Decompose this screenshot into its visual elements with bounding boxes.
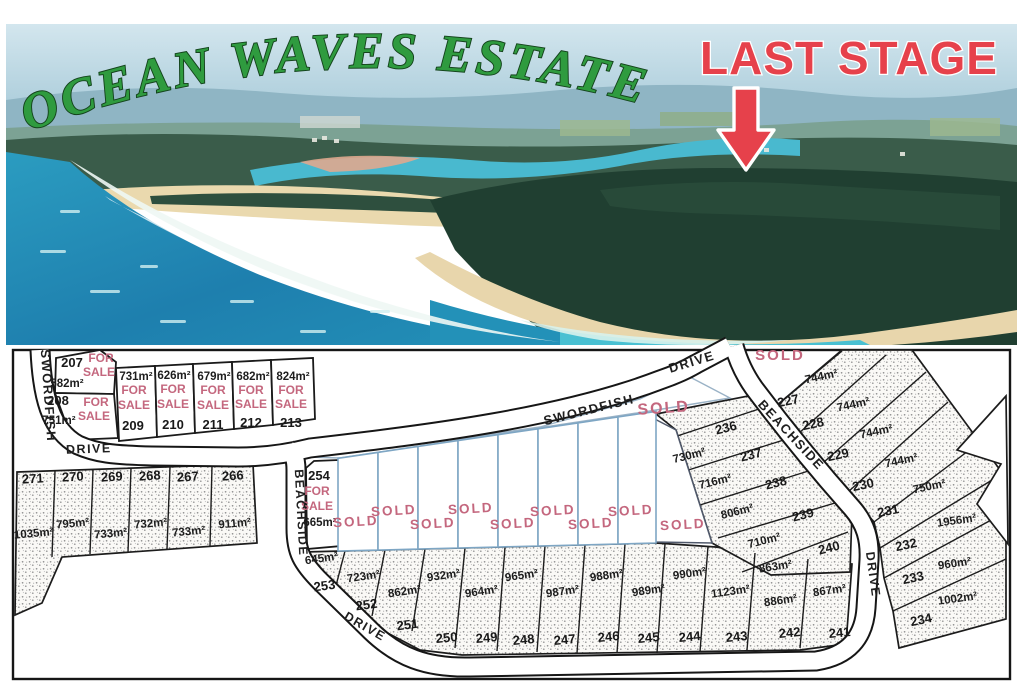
lot-number: 245: [637, 629, 660, 646]
lot-number: 212: [240, 415, 262, 430]
lot-number: 248: [512, 631, 535, 648]
street-label-drive-west: DRIVE: [66, 441, 112, 457]
for-sale-label: SALE: [78, 409, 110, 423]
sold-label: SOLD: [568, 515, 614, 532]
sold-label: SOLD: [755, 347, 805, 364]
lot-sold-row: [378, 447, 418, 551]
sold-label: SOLD: [660, 516, 706, 533]
lot-number: 253: [313, 577, 336, 595]
estate-poster: OCEAN WAVES ESTATE LAST STAGE 207582m²FO…: [0, 0, 1023, 688]
for-sale-label: SALE: [83, 365, 115, 379]
lot-number: 267: [177, 468, 199, 484]
lot-number: 213: [280, 415, 302, 430]
for-sale-label: SALE: [275, 397, 307, 411]
lot-number: 251: [396, 616, 419, 634]
sold-label: SOLD: [490, 515, 536, 532]
estate-lot-map: 207582m²FORSALE208751m²FORSALE209731m²FO…: [0, 0, 1023, 688]
sold-label: SOLD: [448, 500, 494, 517]
for-sale-label: FOR: [200, 383, 226, 397]
for-sale-label: FOR: [278, 383, 304, 397]
for-sale-label: FOR: [121, 383, 147, 397]
lot-number: 210: [162, 417, 184, 432]
lot-number: 246: [597, 628, 620, 645]
lot-number: 242: [778, 624, 801, 641]
for-sale-label: SALE: [235, 397, 267, 411]
lot-number: 249: [475, 629, 498, 646]
sold-label: SOLD: [410, 515, 456, 532]
lot-number: 271: [22, 470, 44, 486]
lot-number: 211: [203, 417, 224, 432]
for-sale-label: SALE: [197, 398, 229, 412]
lot-number: 207: [61, 355, 83, 370]
lot-number: 244: [678, 628, 702, 645]
lot-area: 626m²: [157, 370, 190, 382]
lot-number: 247: [553, 631, 576, 648]
lot-number: 268: [139, 467, 161, 483]
lot-number: 250: [435, 629, 458, 646]
lot-number: 254: [308, 468, 330, 483]
lot-number: 266: [222, 467, 244, 483]
lot-sold-row: [338, 452, 378, 551]
lot-number: 241: [828, 624, 851, 641]
for-sale-label: FOR: [238, 383, 264, 397]
lot-number: 243: [725, 628, 748, 645]
for-sale-label: FOR: [88, 351, 114, 365]
lot-number: 252: [355, 596, 378, 614]
sold-label: SOLD: [608, 502, 654, 519]
lot-sold-row: [618, 411, 656, 544]
for-sale-label: FOR: [304, 484, 330, 498]
lot-area: 731m²: [119, 371, 152, 383]
lot-number: 209: [122, 418, 144, 433]
lot-area: 679m²: [197, 371, 230, 383]
for-sale-label: FOR: [160, 382, 186, 396]
lot-sold-row: [418, 441, 458, 549]
lot-number: 269: [101, 468, 123, 484]
lot-area: 682m²: [236, 371, 269, 383]
for-sale-label: FOR: [83, 395, 109, 409]
for-sale-label: SALE: [157, 397, 189, 411]
for-sale-label: SALE: [118, 398, 150, 412]
lot-area: 824m²: [276, 371, 309, 383]
lot-number: 270: [62, 468, 84, 484]
